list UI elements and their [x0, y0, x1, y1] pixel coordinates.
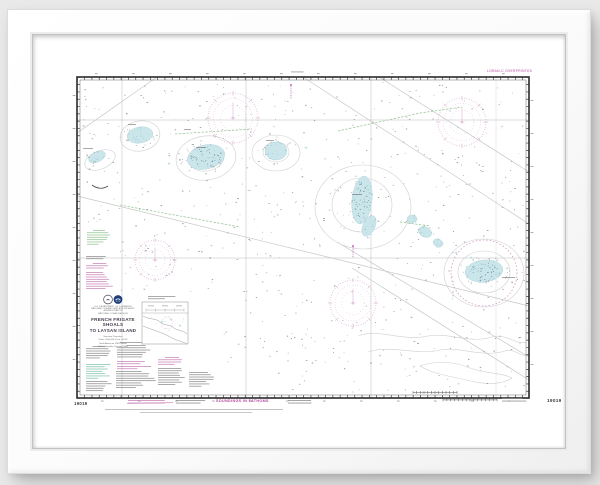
projection-line-2: Scale 1:600,000 at Lat. 24°00' [84, 339, 142, 341]
projection-line-4: (World Geodetic System 1984) [84, 346, 142, 348]
chart-title-block: U.S. DEPARTMENT OF COMMERCE NATIONAL OCE… [84, 294, 142, 348]
chart-title-line-2: TO LAYSAN ISLAND [84, 328, 142, 333]
chart-title-line-1: FRENCH FRIGATE SHOALS [84, 317, 142, 327]
framed-nautical-chart-photo: U.S. DEPARTMENT OF COMMERCE NATIONAL OCE… [0, 0, 600, 485]
loran-overprint-note: LORAN-C OVERPRINTED [487, 70, 532, 73]
agency-logos [103, 294, 123, 305]
agency-line-3: NATIONAL OCEAN SERVICE [84, 313, 142, 315]
chart-number-lower-right: 19019 [547, 399, 562, 404]
picture-frame [8, 10, 590, 473]
noaa-logo-icon [114, 295, 123, 304]
soundings-note: SOUNDINGS IN FATHOMS [216, 400, 269, 404]
agency-line-2: NATIONAL OCEANIC AND ATMOSPHERIC ADMINIS… [84, 308, 142, 312]
mat-board [33, 35, 565, 448]
commerce-eagle-icon [104, 295, 113, 304]
chart-number-lower-left: 19019 [74, 402, 87, 406]
projection-line-3: North American 1983 Datum [84, 343, 142, 345]
